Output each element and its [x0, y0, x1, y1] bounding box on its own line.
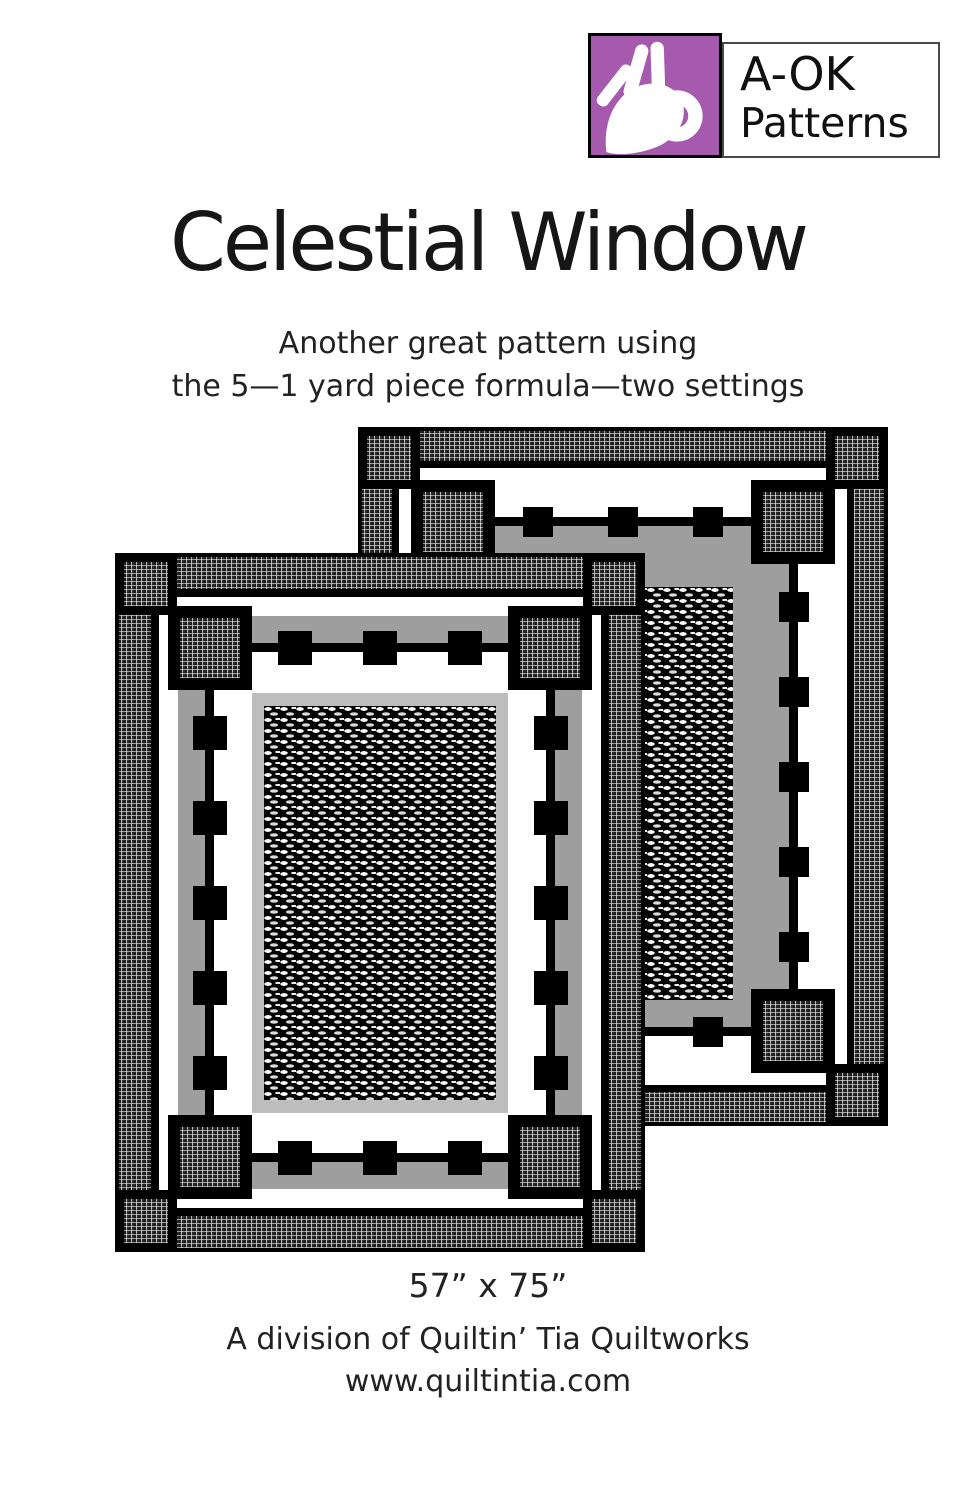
- sashing-corner-block: [508, 606, 592, 690]
- border-corner-square: [583, 553, 645, 615]
- border-corner-square: [115, 1190, 177, 1252]
- subtitle-line1: Another great pattern using: [0, 322, 976, 365]
- sashing-cornerstone: [278, 1141, 312, 1175]
- pattern-cover-page: A-OK Patterns Celestial Window Another g…: [0, 0, 976, 1500]
- sashing-cornerstone: [693, 1017, 723, 1047]
- sashing-cornerstone: [193, 716, 227, 750]
- sashing-cornerstone: [523, 507, 553, 537]
- brand-logo-mark: [588, 33, 722, 158]
- sashing-corner-block: [168, 606, 252, 690]
- sashing-cornerstone: [779, 592, 809, 622]
- sashing-cornerstone: [534, 971, 568, 1005]
- division-note: A division of Quiltin’ Tia Quiltworks: [0, 1322, 976, 1357]
- ok-hand-icon: [591, 36, 719, 155]
- sashing-cornerstone: [534, 716, 568, 750]
- border-corner-square: [826, 1064, 888, 1126]
- sashing-cornerstone: [779, 762, 809, 792]
- border-corner-square: [358, 427, 420, 489]
- subtitle-line2: the 5—1 yard piece formula—two settings: [0, 365, 976, 408]
- center-print-panel: [264, 706, 496, 1100]
- sashing-cornerstone: [193, 801, 227, 835]
- border-corner-square: [583, 1190, 645, 1252]
- sashing-cornerstone: [448, 631, 482, 665]
- sashing-cornerstone: [779, 677, 809, 707]
- border-corner-square: [115, 553, 177, 615]
- sashing-cornerstone: [608, 507, 638, 537]
- website-url: www.quiltintia.com: [0, 1364, 976, 1399]
- sashing-cornerstone: [448, 1141, 482, 1175]
- sashing-cornerstone: [278, 631, 312, 665]
- quilt-illustration: [115, 427, 888, 1252]
- sashing-corner-block: [751, 480, 835, 564]
- subtitle: Another great pattern using the 5—1 yard…: [0, 322, 976, 408]
- border-corner-square: [826, 427, 888, 489]
- sashing-cornerstone: [693, 507, 723, 537]
- quilt-setting-one: [115, 553, 645, 1252]
- sashing-cornerstone: [534, 801, 568, 835]
- sashing-corner-block: [168, 1115, 252, 1199]
- sashing-corner-block: [508, 1115, 592, 1199]
- sashing-cornerstone: [193, 886, 227, 920]
- sashing-cornerstone: [193, 1056, 227, 1090]
- sashing-cornerstone: [779, 932, 809, 962]
- brand-line1: A-OK: [740, 49, 938, 101]
- sashing-cornerstone: [779, 847, 809, 877]
- sashing-cornerstone: [534, 1056, 568, 1090]
- finished-size: 57” x 75”: [0, 1266, 976, 1305]
- sashing-cornerstone: [363, 631, 397, 665]
- brand-line2: Patterns: [740, 101, 938, 147]
- brand-name-box: A-OK Patterns: [722, 42, 940, 158]
- sashing-corner-block: [411, 480, 495, 564]
- sashing-cornerstone: [534, 886, 568, 920]
- sashing-cornerstone: [193, 971, 227, 1005]
- sashing-cornerstone: [363, 1141, 397, 1175]
- page-title: Celestial Window: [0, 196, 976, 289]
- sashing-corner-block: [751, 989, 835, 1073]
